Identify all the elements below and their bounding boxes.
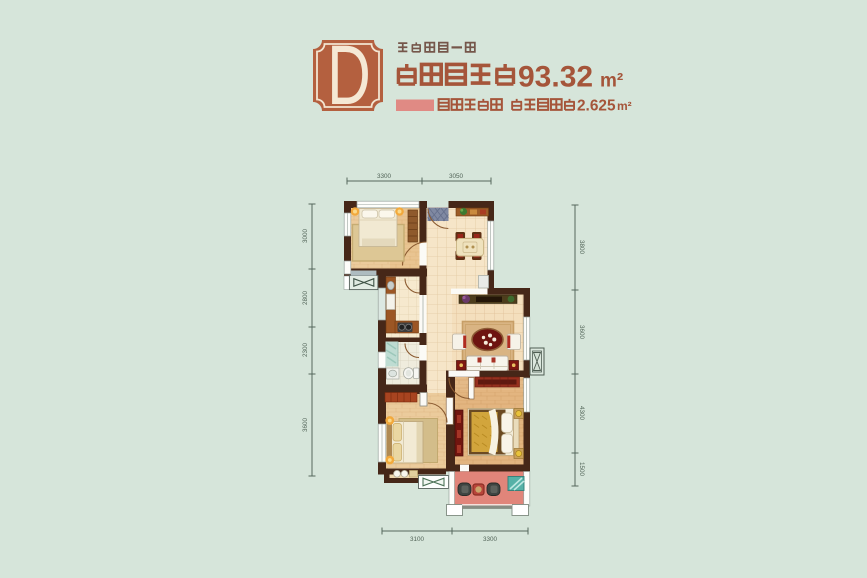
svg-text:3600: 3600: [578, 325, 585, 340]
svg-text:1500: 1500: [578, 462, 585, 477]
svg-text:3000: 3000: [302, 229, 309, 244]
svg-text:3100: 3100: [410, 536, 425, 543]
svg-text:3050: 3050: [449, 173, 464, 180]
svg-text:3300: 3300: [377, 173, 392, 180]
svg-text:2800: 2800: [302, 291, 309, 306]
svg-text:D: D: [327, 28, 371, 122]
svg-text:3800: 3800: [578, 240, 585, 255]
svg-text:m²: m²: [600, 71, 623, 92]
svg-text:2.625: 2.625: [577, 98, 616, 115]
svg-text:93.32: 93.32: [518, 61, 593, 94]
svg-text:3300: 3300: [483, 536, 498, 543]
svg-text:4300: 4300: [578, 406, 585, 421]
svg-text:2300: 2300: [302, 343, 309, 358]
svg-text:m²: m²: [617, 99, 632, 113]
svg-text:3600: 3600: [302, 418, 309, 433]
